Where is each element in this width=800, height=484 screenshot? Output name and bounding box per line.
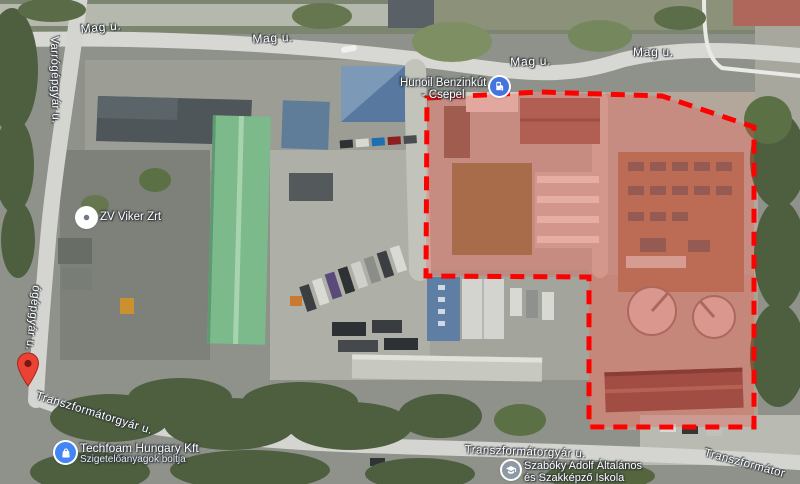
shopping-bag-icon[interactable] xyxy=(55,442,76,463)
satellite-imagery xyxy=(0,0,800,484)
poi-hunoil-name: Hunoil Benzinkút xyxy=(400,77,486,89)
poi-szaboky-name-1: Szabóky Adolf Általános xyxy=(524,461,642,473)
fuel-pump-icon[interactable] xyxy=(490,77,509,96)
poi-hunoil-name-2: - Csepel xyxy=(400,89,486,101)
poi-zv-viker-name: ZV Viker Zrt xyxy=(100,211,161,223)
poi-techfoam-name: Techfoam Hungary Kft xyxy=(80,442,199,455)
poi-techfoam[interactable]: Techfoam Hungary Kft Szigetelőanyagok bo… xyxy=(55,442,199,465)
poi-techfoam-subtitle: Szigetelőanyagok boltja xyxy=(80,455,199,466)
poi-szaboky-name-2: és Szakképző Iskola xyxy=(524,473,642,484)
poi-zv-viker[interactable]: ZV Viker Zrt xyxy=(77,208,161,227)
red-map-pin[interactable] xyxy=(16,352,40,388)
satellite-map[interactable]: Mag u. Mag u. Mag u. Mag u. Varrógépgyár… xyxy=(0,0,800,484)
school-icon[interactable] xyxy=(502,461,520,479)
green-warehouse xyxy=(207,115,271,344)
poi-szaboky-iskola[interactable]: Szabóky Adolf Általános és Szakképző Isk… xyxy=(502,461,642,484)
poi-hunoil[interactable]: Hunoil Benzinkút - Csepel xyxy=(400,77,509,101)
generic-poi-icon[interactable] xyxy=(77,208,96,227)
